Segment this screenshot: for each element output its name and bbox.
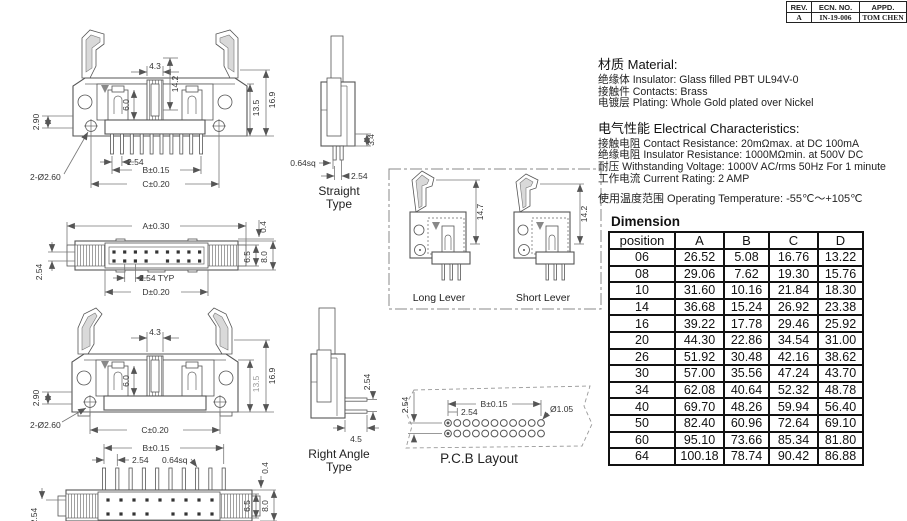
- dim-label-pin-pitch: 2.54: [127, 157, 144, 167]
- dim-label-short-lever-height: 14.2: [579, 205, 589, 222]
- table-cell: 21.84: [769, 282, 818, 299]
- material-line: 绝缘体 Insulator: Glass filled PBT UL94V-0: [598, 75, 904, 87]
- dim-label-pitch: 2.54: [132, 455, 149, 465]
- material-heading: 材质 Material:: [598, 54, 904, 73]
- table-cell: 95.10: [675, 432, 724, 449]
- pcb-outline: [404, 386, 592, 448]
- rev-value: A: [787, 13, 812, 23]
- rev-column-header: REV.: [787, 2, 812, 13]
- dim-label-lip: 0.4: [258, 221, 268, 233]
- table-cell: 08: [609, 266, 675, 283]
- dim-label-total-height: 16.9: [267, 367, 277, 384]
- dimension-table-title: Dimension: [611, 214, 680, 229]
- table-cell: 19.30: [769, 266, 818, 283]
- dimension-table-body: 0626.525.0816.7613.220829.067.6219.3015.…: [609, 249, 863, 465]
- dim-label-total-height: 16.9: [267, 91, 277, 108]
- table-cell: 48.78: [818, 382, 863, 399]
- drawing-top-view-with-pins: B±0.15 2.54 0.64sq 0.4 6.5 8.0 2.54: [28, 438, 290, 521]
- dim-label-row-pitch: 2.54: [400, 396, 410, 413]
- connector-top-body: [67, 239, 246, 272]
- dim-label-pitch: 2.54: [351, 171, 368, 181]
- latch-right: [216, 30, 238, 78]
- table-cell: 50: [609, 415, 675, 432]
- pin-row: [102, 468, 225, 490]
- electrical-heading: 电气性能 Electrical Characteristics:: [598, 118, 904, 137]
- table-cell: 10.16: [724, 282, 769, 299]
- table-row: 5082.4060.9672.6469.10: [609, 415, 863, 432]
- dim-label-inner-height: 6.5: [242, 500, 252, 512]
- dimension-table-header-row: position A B C D: [609, 232, 863, 249]
- table-cell: 30.48: [724, 349, 769, 366]
- table-cell: 29.46: [769, 315, 818, 332]
- pin: [345, 398, 367, 401]
- long-lever-view: 14.7: [410, 171, 485, 280]
- latch-left: [78, 308, 102, 354]
- ecn-value: IN-19-006: [812, 13, 860, 23]
- operating-temperature: 使用温度范围 Operating Temperature: -55℃～+105℃: [598, 194, 904, 206]
- table-cell: 47.24: [769, 365, 818, 382]
- table-cell: 26.52: [675, 249, 724, 266]
- column-header-position: position: [609, 232, 675, 249]
- table-cell: 62.08: [675, 382, 724, 399]
- table-cell: 20: [609, 332, 675, 349]
- table-row: 1031.6010.1621.8418.30: [609, 282, 863, 299]
- table-cell: 51.92: [675, 349, 724, 366]
- dim-label-outer-height: 8.0: [260, 500, 270, 512]
- table-row: 2044.3022.8634.5431.00: [609, 332, 863, 349]
- table-cell: 42.16: [769, 349, 818, 366]
- table-cell: 90.42: [769, 448, 818, 465]
- table-cell: 34: [609, 382, 675, 399]
- table-row: 0829.067.6219.3015.76: [609, 266, 863, 283]
- dim-label-span-c: C±0.20: [141, 425, 169, 435]
- table-cell: 26: [609, 349, 675, 366]
- table-cell: 48.26: [724, 398, 769, 415]
- pcb-layout-caption: P.C.B Layout: [404, 452, 554, 465]
- table-cell: 82.40: [675, 415, 724, 432]
- table-row: 4069.7048.2659.9456.40: [609, 398, 863, 415]
- short-lever-caption: Short Lever: [516, 292, 571, 304]
- table-cell: 52.32: [769, 382, 818, 399]
- appd-value: TOM CHEN: [859, 13, 906, 23]
- table-cell: 43.70: [818, 365, 863, 382]
- table-cell: 15.76: [818, 266, 863, 283]
- column-header-b: B: [724, 232, 769, 249]
- ecn-column-header: ECN. NO.: [812, 2, 860, 13]
- table-cell: 57.00: [675, 365, 724, 382]
- hole-grid: [445, 420, 545, 437]
- material-line: 电镀层 Plating: Whole Gold plated over Nick…: [598, 98, 904, 110]
- dim-label-lip: 0.4: [260, 462, 270, 474]
- table-cell: 31.60: [675, 282, 724, 299]
- column-header-d: D: [818, 232, 863, 249]
- dim-label-hole-offset: 2.90: [31, 113, 41, 130]
- table-cell: 40.64: [724, 382, 769, 399]
- dim-label-body-height: 13.5: [251, 375, 261, 392]
- dim-label-inner-height: 6.5: [242, 251, 252, 263]
- dim-label-span-c: C±0.20: [142, 179, 170, 189]
- table-cell: 81.80: [818, 432, 863, 449]
- table-cell: 15.24: [724, 299, 769, 316]
- table-cell: 69.70: [675, 398, 724, 415]
- dim-label-pin-sq: 0.64sq: [290, 158, 316, 168]
- dim-label-slot-height: 6.0: [121, 375, 131, 387]
- table-cell: 13.22: [818, 249, 863, 266]
- table-cell: 7.62: [724, 266, 769, 283]
- drawing-right-angle-type: 2.54 4.5: [283, 296, 395, 448]
- table-cell: 18.30: [818, 282, 863, 299]
- dim-label-standoff: 3.4: [366, 134, 376, 146]
- table-row: 64100.1878.7490.4286.88: [609, 448, 863, 465]
- table-cell: 36.68: [675, 299, 724, 316]
- dim-label-row-pitch: 2.54: [29, 507, 39, 521]
- table-row: 6095.1073.6685.3481.80: [609, 432, 863, 449]
- table-cell: 5.08: [724, 249, 769, 266]
- table-cell: 59.94: [769, 398, 818, 415]
- table-cell: 35.56: [724, 365, 769, 382]
- dim-label-span-b: B±0.15: [143, 165, 170, 175]
- dim-label-span-d: D±0.20: [142, 287, 170, 297]
- drawing-front-view-long-latch: 4.3 14.2 6.0 2.90 13.5 16.9 2-Ø2.60 2.54…: [28, 24, 280, 202]
- dim-label-pitch-typ: 2.54 TYP: [139, 273, 175, 283]
- revision-table: REV. ECN. NO. APPD. A IN-19-006 TOM CHEN: [786, 1, 907, 23]
- table-cell: 22.86: [724, 332, 769, 349]
- connector-profile: [321, 78, 355, 146]
- right-angle-type-caption: Right Angle Type: [283, 448, 395, 474]
- table-cell: 30: [609, 365, 675, 382]
- dim-label-long-lever-height: 14.7: [475, 203, 485, 220]
- table-cell: 85.34: [769, 432, 818, 449]
- table-row: 2651.9230.4842.1638.62: [609, 349, 863, 366]
- table-row: 1639.2217.7829.4625.92: [609, 315, 863, 332]
- drawing-top-view: A±0.30 0.4 6.5 8.0 2.54 2.54 TYP D±0.20: [28, 212, 286, 308]
- pin-row: [111, 134, 203, 154]
- dim-label-row-pitch: 2.54: [34, 263, 44, 280]
- revision-row: A IN-19-006 TOM CHEN: [787, 13, 907, 23]
- table-cell: 60.96: [724, 415, 769, 432]
- electrical-line: 工作电流 Current Rating: 2 AMP: [598, 174, 904, 186]
- table-cell: 16: [609, 315, 675, 332]
- table-cell: 86.88: [818, 448, 863, 465]
- dim-label-outer-height: 8.0: [259, 251, 269, 263]
- table-cell: 78.74: [724, 448, 769, 465]
- table-cell: 14: [609, 299, 675, 316]
- short-lever-view: 14.2: [514, 174, 589, 280]
- dim-label-pin-sq: 0.64sq: [162, 455, 188, 465]
- connector-shell: [73, 78, 247, 136]
- drawing-pcb-layout: 2.54 B±0.15 2.54 Ø1.05: [394, 378, 600, 482]
- dim-label-mount-holes: 2-Ø2.60: [30, 172, 61, 182]
- appd-column-header: APPD.: [859, 2, 906, 13]
- table-cell: 69.10: [818, 415, 863, 432]
- table-cell: 06: [609, 249, 675, 266]
- dim-label-mount-holes: 2-Ø2.60: [30, 420, 61, 430]
- table-cell: 56.40: [818, 398, 863, 415]
- dim-label-slot-height: 6.0: [121, 99, 131, 111]
- long-lever-caption: Long Lever: [413, 292, 466, 304]
- latch-left: [82, 30, 104, 78]
- dim-label-hole-offset: 2.90: [31, 389, 41, 406]
- dim-label-tail: 4.5: [350, 434, 362, 444]
- column-header-a: A: [675, 232, 724, 249]
- table-row: 3462.0840.6452.3248.78: [609, 382, 863, 399]
- dim-label-body-height: 13.5: [251, 99, 261, 116]
- drawing-straight-type: 3.4 0.64sq 2.54: [283, 32, 395, 184]
- table-cell: 38.62: [818, 349, 863, 366]
- dim-label-span-b: B±0.15: [481, 399, 508, 409]
- table-cell: 44.30: [675, 332, 724, 349]
- connector-profile: [311, 350, 345, 418]
- table-cell: 64: [609, 448, 675, 465]
- revision-header-row: REV. ECN. NO. APPD.: [787, 2, 907, 13]
- dim-label-span-b: B±0.15: [143, 443, 170, 453]
- specs-block: 材质 Material: 绝缘体 Insulator: Glass filled…: [598, 54, 904, 206]
- latch-right: [208, 308, 232, 354]
- table-cell: 31.00: [818, 332, 863, 349]
- table-row: 3057.0035.5647.2443.70: [609, 365, 863, 382]
- dimension-table: position A B C D 0626.525.0816.7613.2208…: [608, 231, 864, 466]
- table-cell: 60: [609, 432, 675, 449]
- dim-label-latch-height: 14.2: [170, 75, 180, 92]
- dim-label-span-a: A±0.30: [143, 221, 170, 231]
- table-cell: 40: [609, 398, 675, 415]
- dim-label-pitch: 2.54: [362, 373, 372, 390]
- pin: [333, 146, 336, 160]
- cable-slot: [331, 36, 343, 82]
- pin: [340, 146, 343, 160]
- dim-label-pitch: 2.54: [461, 407, 478, 417]
- table-row: 0626.525.0816.7613.22: [609, 249, 863, 266]
- connector-shell: [72, 354, 238, 416]
- column-header-c: C: [769, 232, 818, 249]
- table-cell: 29.06: [675, 266, 724, 283]
- drawing-front-view-short-latch: 4.3 6.0 2.90 13.5 16.9 2-Ø2.60 C±0.20: [28, 304, 284, 450]
- cable-slot: [319, 308, 335, 354]
- table-cell: 72.64: [769, 415, 818, 432]
- table-cell: 17.78: [724, 315, 769, 332]
- table-cell: 10: [609, 282, 675, 299]
- table-cell: 16.76: [769, 249, 818, 266]
- drawing-lever-detail-box: 14.7 14.2 Long Lever Short Lever: [386, 166, 604, 314]
- table-cell: 39.22: [675, 315, 724, 332]
- table-cell: 25.92: [818, 315, 863, 332]
- dim-label-hole-dia: Ø1.05: [550, 404, 573, 414]
- dim-label-key-width: 4.3: [149, 327, 161, 337]
- electrical-line: 耐压 Withstanding Voltage: 1000V AC/rms 50…: [598, 162, 904, 174]
- straight-type-caption: Straight Type: [283, 185, 395, 211]
- table-cell: 34.54: [769, 332, 818, 349]
- dim-label-key-width: 4.3: [149, 61, 161, 71]
- table-cell: 73.66: [724, 432, 769, 449]
- connector-top-body: [58, 490, 260, 521]
- table-cell: 100.18: [675, 448, 724, 465]
- table-cell: 23.38: [818, 299, 863, 316]
- datasheet-page: { "revision_table": { "headers": ["REV."…: [0, 0, 907, 521]
- pin: [345, 410, 367, 413]
- table-row: 1436.6815.2426.9223.38: [609, 299, 863, 316]
- table-cell: 26.92: [769, 299, 818, 316]
